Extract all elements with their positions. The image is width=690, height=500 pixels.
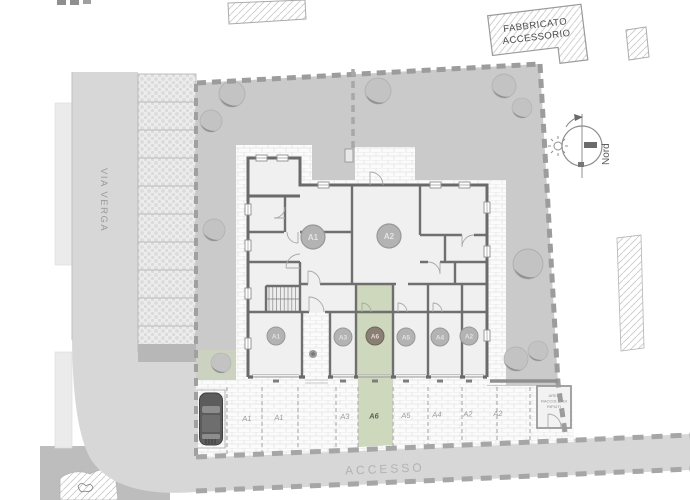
road-mark [70,0,79,5]
garage-a3-label: A3 [339,335,348,342]
tree [492,74,516,98]
waste-label-3: RIFIUTI [547,404,561,409]
apartment-a2-label: A2 [384,232,395,241]
car [200,393,223,445]
waste-label-2: RACCOLTA DI [541,399,567,404]
stall-label-1: A1 [241,414,251,423]
garage-a5-label: A5 [402,335,411,342]
garage-a2-label: A2 [465,334,474,341]
street-name-label: VIA VERGA [98,168,109,232]
apartment-a1-label: A1 [308,233,319,242]
compass-arrow-arc [566,118,576,127]
tree [219,81,245,107]
paving-entrance [355,147,415,185]
neighbor-building-top [228,0,306,24]
accessory-building: FABBRICATO ACCESSORIO [488,4,588,71]
compass-foot [578,162,584,167]
street-parking-strip [138,74,196,362]
stall-label-7: A2 [462,409,473,418]
tree [528,341,548,361]
chimney [345,149,353,162]
road-mark [57,0,66,5]
stall-label-8: A2 [492,409,503,418]
tree [513,249,543,279]
tree [365,78,391,104]
stall-label-2: A1 [273,413,283,422]
tree [203,219,225,241]
tree [211,353,231,373]
porch-plant-center [311,352,315,356]
porch-paving [302,312,330,377]
stall-label-3: A3 [339,412,350,421]
sidewalk-upper [55,103,72,265]
road-mark [83,0,91,4]
sidewalk-lower [55,352,72,448]
waste-enclosure: AREA RACCOLTA DI RIFIUTI [537,386,571,428]
tree [504,347,528,371]
stall-label-5: A5 [400,411,411,420]
site-plan-page: A1 A2 A1 A3 A6 A5 A4 A2 A1 A1 A3 A6 A5 A… [0,0,690,500]
north-compass: Nord [548,114,612,178]
garage-a6-label: A6 [371,334,380,341]
stall-label-4-highlighted: A6 [368,411,380,420]
tree [512,98,532,118]
garage-a4-label: A4 [436,335,445,342]
sun-icon [548,136,568,156]
neighbor-building-small [626,27,649,60]
north-label: Nord [601,143,612,165]
site-plan-drawing: A1 A2 A1 A3 A6 A5 A4 A2 A1 A1 A3 A6 A5 A… [0,0,690,500]
neighbor-building-east [617,235,644,351]
stall-label-6: A4 [431,410,441,419]
compass-bar [584,142,597,148]
staircase [266,286,300,312]
tree [200,110,222,132]
garage-a1-label: A1 [272,334,281,341]
